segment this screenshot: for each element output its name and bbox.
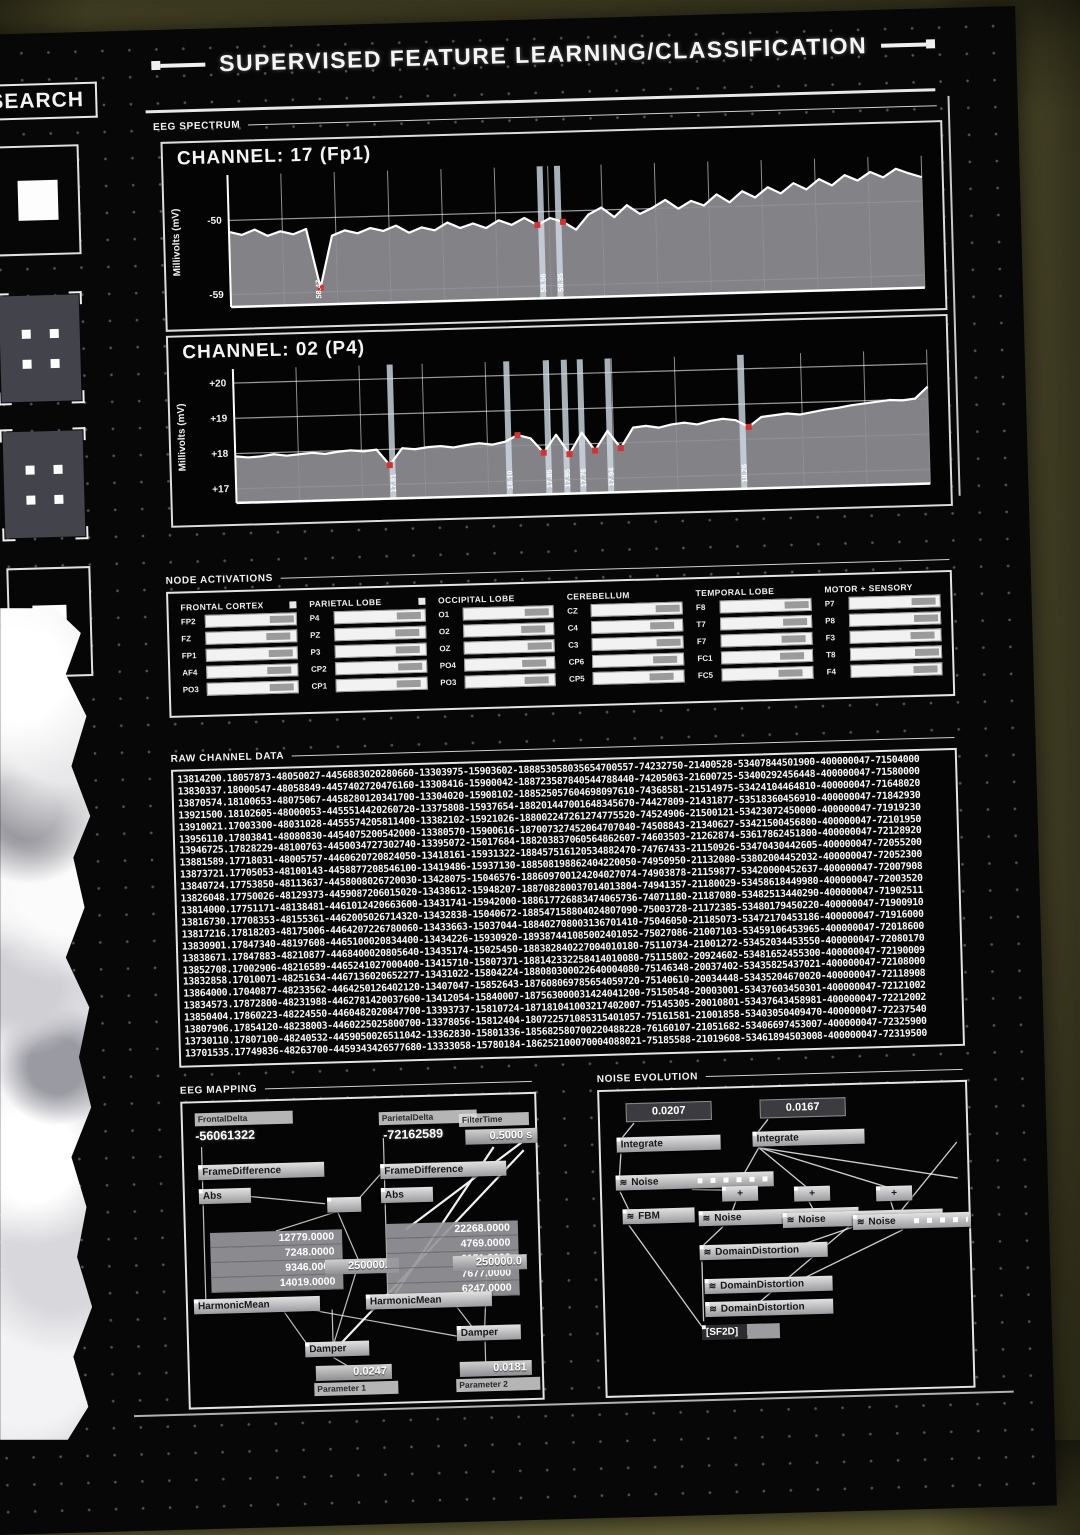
electrode-label: F7	[697, 636, 721, 646]
tool-tile-marker-grid-1[interactable]	[0, 294, 82, 402]
event-marker[interactable]	[566, 451, 572, 457]
slider-knob[interactable]	[267, 666, 291, 674]
svg-text:17.94: 17.94	[606, 467, 616, 487]
slider-knob[interactable]	[523, 659, 547, 667]
electrode-label: AF4	[182, 668, 206, 678]
event-marker[interactable]	[746, 424, 752, 430]
marker-dot-icon	[25, 466, 34, 475]
activation-slider[interactable]	[205, 612, 297, 628]
activation-slider[interactable]	[334, 626, 426, 642]
activation-row: F4	[826, 660, 942, 680]
marker-dot-icon	[22, 360, 31, 369]
eeg-mapping-panel: FrontalDelta -56061322 FrameDifference A…	[180, 1092, 544, 1410]
node-noise[interactable]: ≋Noise	[853, 1212, 971, 1230]
slider-knob[interactable]	[525, 608, 549, 616]
parietal-delta-value: -72162589	[383, 1126, 443, 1142]
node-frontal-delta[interactable]: FrontalDelta	[195, 1111, 293, 1127]
chart-channel-02[interactable]: CHANNEL: 02 (P4) +20+19+18+1717.8118.101…	[166, 314, 953, 528]
frontal-delta-value: -56061322	[195, 1128, 255, 1144]
noise-input-value-2: 0.0167	[759, 1097, 845, 1118]
slider-knob[interactable]	[779, 669, 803, 677]
title-bar: SUPERVISED FEATURE LEARNING/CLASSIFICATI…	[151, 30, 935, 79]
activation-slider[interactable]	[207, 680, 299, 696]
node-sf2d[interactable]: [SF2D]	[702, 1323, 780, 1340]
search-button[interactable]: SEARCH	[0, 82, 98, 121]
wave-icon: ≋	[709, 1302, 717, 1317]
node-framedifference[interactable]: FrameDifference	[380, 1161, 506, 1180]
slider-knob[interactable]	[913, 665, 937, 673]
title-bar-cap	[151, 61, 160, 70]
electrode-label: FP2	[181, 617, 205, 627]
svg-text:58.56: 58.56	[539, 273, 549, 292]
slider-knob[interactable]	[657, 639, 681, 647]
slider-knob[interactable]	[782, 635, 806, 643]
activation-slider[interactable]	[463, 622, 555, 638]
svg-text:17.95: 17.95	[563, 469, 573, 488]
slider-knob[interactable]	[396, 680, 420, 688]
marker-dot-icon	[53, 465, 62, 474]
eeg-chart-svg[interactable]: +20+19+18+1717.8118.1017.8517.9517.7617.…	[169, 343, 947, 521]
activation-slider[interactable]	[721, 632, 813, 648]
slider-knob[interactable]	[650, 622, 674, 630]
electrode-label: PO3	[440, 678, 464, 688]
electrode-label: PZ	[310, 630, 334, 640]
node-framedifference[interactable]: FrameDifference	[198, 1162, 324, 1181]
activation-group-title: OCCIPITAL LOBE	[438, 593, 515, 605]
activation-slider[interactable]	[593, 669, 685, 685]
corner-bracket-icon	[75, 526, 88, 539]
tool-tile-marker-grid-2[interactable]	[3, 430, 86, 538]
activation-group: OCCIPITAL LOBEO1O2OZPO4PO3	[438, 591, 556, 691]
page-title: SUPERVISED FEATURE LEARNING/CLASSIFICATI…	[205, 32, 882, 78]
event-marker[interactable]	[387, 462, 393, 468]
node-harmonicmean[interactable]: HarmonicMean	[366, 1291, 492, 1310]
activation-slider[interactable]	[850, 645, 942, 661]
electrode-label: P3	[310, 647, 334, 657]
y-axis-label: Millivolts (mV)	[176, 403, 189, 471]
wave-icon: ≋	[703, 1211, 711, 1226]
svg-text:+20: +20	[209, 378, 227, 389]
electrode-label: T8	[826, 650, 850, 660]
electrode-label: C3	[568, 640, 592, 650]
electrode-label: FC5	[698, 670, 722, 680]
tool-tile-solid-square[interactable]	[0, 144, 82, 256]
electrode-label: P7	[825, 599, 849, 609]
activation-slider[interactable]	[849, 611, 941, 627]
noise-input-value-1: 0.0207	[625, 1101, 711, 1122]
svg-text:+17: +17	[212, 484, 230, 495]
activation-group: CEREBELLUMCZC4C3CP6CP5	[567, 588, 685, 688]
node-integrate[interactable]: Integrate	[752, 1129, 864, 1147]
svg-text:17.81: 17.81	[389, 474, 399, 493]
wave-icon: ≋	[620, 1175, 628, 1190]
electrode-label: CP2	[311, 664, 335, 674]
activation-slider[interactable]	[206, 663, 298, 679]
group-checkbox-icon[interactable]	[418, 597, 425, 604]
activation-group: PARIETAL LOBEP4PZP3CP2CP1	[309, 595, 427, 695]
corner-bracket-icon	[0, 392, 12, 405]
activation-slider[interactable]	[334, 643, 426, 659]
marker-dot-icon	[26, 496, 35, 505]
electrode-label: F4	[827, 667, 851, 677]
slider-knob[interactable]	[783, 618, 807, 626]
corner-bracket-icon	[0, 293, 9, 306]
raw-data-rows: 13814200.18057873-48050027-4456883020280…	[173, 750, 963, 1063]
electrode-label: F8	[696, 602, 720, 612]
activation-row: FC5	[698, 664, 814, 684]
wave-icon: ≋	[787, 1213, 795, 1228]
slider-knob[interactable]	[914, 614, 938, 622]
activation-group-title: PARIETAL LOBE	[309, 597, 382, 609]
node-parameter-2[interactable]: Parameter 2	[456, 1377, 540, 1392]
slider-knob[interactable]	[780, 652, 804, 660]
activation-slider[interactable]	[720, 598, 812, 614]
filtertime-value: 0.5000 s	[465, 1128, 537, 1145]
marker-dot-icon	[50, 329, 59, 338]
slider-knob[interactable]	[525, 676, 549, 684]
svg-text:-50: -50	[207, 216, 222, 227]
result-value: 0.0181	[460, 1360, 532, 1377]
svg-text:+18: +18	[211, 449, 229, 460]
eeg-chart-svg[interactable]: -50-5958.5658.3558.47Millivolts (mV)	[163, 149, 941, 325]
electrode-label: OZ	[439, 644, 463, 654]
node-add[interactable]: +	[794, 1186, 830, 1202]
node-domaindistortion[interactable]: ≋DomainDistortion	[705, 1299, 833, 1318]
activation-slider[interactable]	[592, 635, 684, 651]
node-fbm[interactable]: ≋FBM	[622, 1207, 694, 1224]
svg-text:58.47: 58.47	[314, 280, 324, 299]
slider-knob[interactable]	[269, 649, 293, 657]
event-marker[interactable]	[534, 222, 540, 228]
activation-slider[interactable]	[850, 628, 942, 644]
activation-slider[interactable]	[591, 602, 683, 618]
slider-knob[interactable]	[653, 656, 677, 664]
value-row: 14019.0000	[211, 1274, 343, 1293]
activation-slider[interactable]	[721, 649, 813, 665]
node-add[interactable]: +	[722, 1186, 758, 1202]
event-marker[interactable]	[560, 219, 566, 225]
wave-icon: ≋	[626, 1209, 634, 1224]
node-integrate[interactable]: Integrate	[616, 1135, 720, 1153]
corner-bracket-icon	[71, 390, 84, 403]
value-list-left: 12779.00007248.00009346.000014019.0000	[210, 1229, 344, 1293]
search-label: SEARCH	[0, 88, 84, 115]
activation-slider[interactable]	[720, 615, 812, 631]
slider-knob[interactable]	[395, 629, 419, 637]
activation-slider[interactable]	[722, 666, 814, 682]
svg-text:18.26: 18.26	[740, 464, 750, 483]
node-abs[interactable]: Abs	[199, 1188, 251, 1204]
pin-dots	[698, 1176, 771, 1183]
electrode-label: CP1	[311, 681, 335, 691]
activation-slider[interactable]	[850, 662, 942, 678]
dashboard-screen: SEARCH SUPERVISED FEATURE LEARNING/CLASS…	[0, 6, 1057, 1535]
node-filtertime[interactable]: FilterTime	[459, 1112, 529, 1127]
slider-knob[interactable]	[396, 612, 420, 620]
y-axis-label: Millivolts (mV)	[170, 208, 183, 276]
node-abs[interactable]: Abs	[381, 1187, 433, 1203]
svg-text:58.35: 58.35	[556, 273, 566, 292]
activation-group: TEMPORAL LOBEF8T7F7FC1FC5	[695, 584, 813, 684]
activation-slider[interactable]	[591, 619, 683, 635]
activation-slider[interactable]	[335, 677, 427, 693]
slider-knob[interactable]	[522, 625, 546, 633]
noise-evolution-panel: 0.0207 0.0167 Integrate Integrate ≋Noise…	[597, 1080, 975, 1398]
activation-row: PO3	[440, 671, 556, 691]
activation-group-title: CEREBELLUM	[567, 590, 630, 602]
raw-channel-data-panel: 13814200.18057873-48050027-4456883020280…	[171, 748, 965, 1068]
node-damper[interactable]: Damper	[305, 1341, 369, 1358]
node-parameter-1[interactable]: Parameter 1	[314, 1381, 398, 1396]
svg-text:+19: +19	[210, 414, 228, 425]
electrode-label: C4	[568, 623, 592, 633]
electrode-label: FZ	[181, 634, 205, 644]
slider-knob[interactable]	[398, 663, 422, 671]
slider-knob[interactable]	[269, 683, 293, 691]
gain-value: 250000.0	[453, 1254, 527, 1271]
slider-knob[interactable]	[270, 615, 294, 623]
electrode-label: O2	[439, 627, 463, 637]
corner-bracket-icon	[69, 291, 82, 304]
activation-slider[interactable]	[463, 639, 555, 655]
node-damper[interactable]: Damper	[457, 1324, 521, 1341]
node-connections	[599, 1082, 969, 1392]
node-domaindistortion[interactable]: ≋DomainDistortion	[704, 1276, 832, 1295]
sculpture-photo	[0, 608, 94, 1440]
activation-slider[interactable]	[335, 660, 427, 676]
svg-text:17.76: 17.76	[579, 468, 589, 487]
svg-text:17.85: 17.85	[545, 469, 555, 488]
svg-text:-59: -59	[209, 290, 224, 301]
node-harmonicmean[interactable]: HarmonicMean	[194, 1296, 320, 1315]
electrode-label: CP6	[569, 657, 593, 667]
slider-knob[interactable]	[266, 632, 290, 640]
wave-icon: ≋	[857, 1215, 865, 1230]
slider-knob[interactable]	[650, 673, 674, 681]
electrode-label: T7	[696, 619, 720, 629]
event-marker[interactable]	[592, 447, 598, 453]
event-marker[interactable]	[618, 445, 624, 451]
marker-dot-icon	[50, 359, 59, 368]
pin-dots	[914, 1217, 968, 1224]
activation-slider[interactable]	[464, 673, 556, 689]
slider-knob[interactable]	[528, 642, 552, 650]
electrode-label: O1	[438, 610, 462, 620]
corner-bracket-icon	[2, 528, 15, 541]
slider-knob[interactable]	[785, 601, 809, 609]
solid-square-icon	[17, 180, 58, 221]
activation-slider[interactable]	[205, 629, 297, 645]
slider-knob[interactable]	[915, 648, 939, 656]
activation-slider[interactable]	[333, 609, 425, 625]
node-activations-panel: FRONTAL CORTEXFP2FZFP1AF4PO3PARIETAL LOB…	[166, 570, 955, 718]
electrode-label: CP5	[569, 674, 593, 684]
electrode-label: FC1	[697, 653, 721, 663]
activation-group: MOTOR + SENSORYP7P8F3T8F4	[824, 580, 942, 680]
activation-group: FRONTAL CORTEXFP2FZFP1AF4PO3	[180, 598, 298, 698]
activation-slider[interactable]	[592, 652, 684, 668]
node-add[interactable]: +	[876, 1185, 912, 1201]
slider-knob[interactable]	[395, 646, 419, 654]
wave-icon: ≋	[703, 1245, 711, 1260]
activation-slider[interactable]	[464, 656, 556, 672]
activation-row: CP5	[569, 667, 685, 687]
node-domaindistortion[interactable]: ≋DomainDistortion	[699, 1242, 827, 1261]
electrode-label: P4	[310, 613, 334, 623]
electrode-label: PO3	[183, 685, 207, 695]
activation-row: CP1	[311, 675, 427, 695]
event-marker[interactable]	[541, 450, 547, 456]
marker-dot-icon	[22, 330, 31, 339]
electrode-label: CZ	[567, 606, 591, 616]
activation-row: PO3	[183, 678, 299, 698]
group-checkbox-icon[interactable]	[289, 601, 296, 608]
activation-slider[interactable]	[206, 646, 298, 662]
electrode-label: F3	[826, 633, 850, 643]
title-bar-cap	[926, 39, 935, 48]
marker-dot-icon	[54, 495, 63, 504]
chart-channel-17[interactable]: CHANNEL: 17 (Fp1) -50-5958.5658.3558.47M…	[160, 120, 947, 332]
slider-knob[interactable]	[911, 597, 935, 605]
svg-text:18.10: 18.10	[505, 470, 515, 489]
wave-icon: ≋	[708, 1279, 716, 1294]
node-connector[interactable]	[327, 1197, 361, 1213]
electrode-label: PO4	[440, 661, 464, 671]
corner-bracket-icon	[0, 429, 13, 442]
slider-knob[interactable]	[656, 605, 680, 613]
electrode-label: P8	[825, 616, 849, 626]
result-value: 0.0247	[316, 1364, 392, 1381]
slider-knob[interactable]	[910, 631, 934, 639]
activation-slider[interactable]	[462, 605, 554, 621]
event-marker[interactable]	[514, 432, 520, 438]
electrode-label: FP1	[182, 651, 206, 661]
activation-slider[interactable]	[849, 594, 941, 610]
corner-bracket-icon	[72, 427, 85, 440]
